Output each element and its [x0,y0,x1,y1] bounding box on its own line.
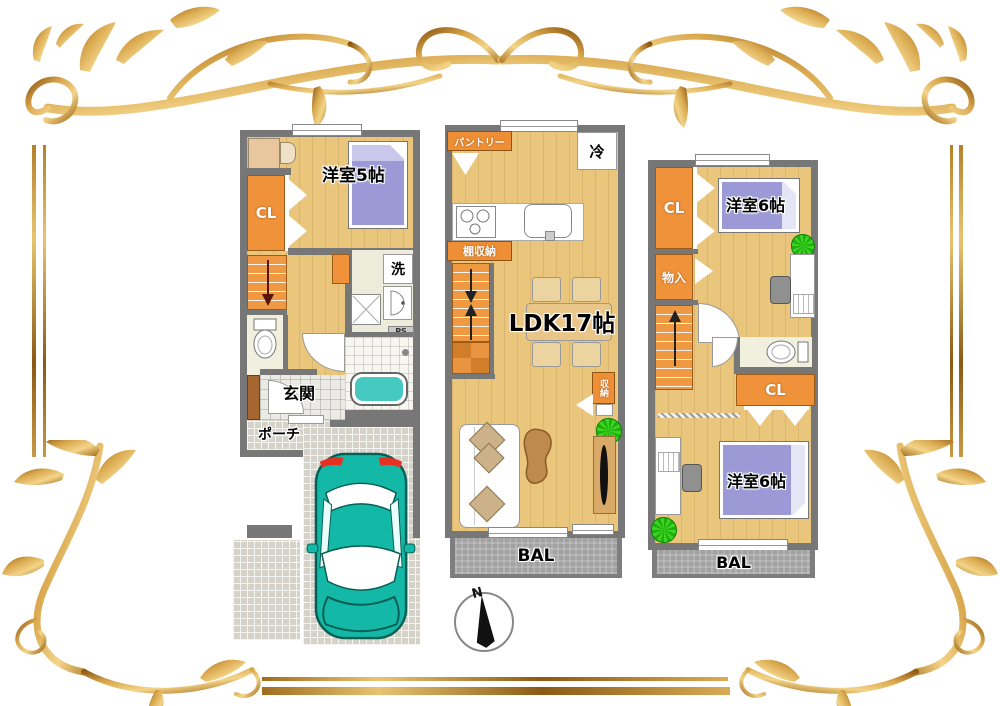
bottom-border-line-thick [262,687,730,695]
plant-icon [651,517,677,543]
storage-3f: 物入 [655,254,693,300]
ldk-label: LDK17帖 [502,304,622,338]
balcony-2f: BAL [450,538,622,578]
wall-segment [490,263,494,374]
balcony-3f: BAL [652,550,815,578]
refrigerator-label: 冷 [589,141,604,162]
balcony-3f-label: BAL [716,553,751,572]
closet-3f-top: CL [655,167,693,249]
washroom-cabinet [332,254,350,284]
dining-chair [532,277,561,302]
dining-chair [572,342,601,367]
closet-1f: CL [247,175,285,251]
floor2-bottom-window [488,527,568,538]
right-border-line-inner [950,145,953,457]
closet-3f-middle: CL [736,374,815,406]
shower-fixture-icon [402,349,409,356]
floor2-bottom-window [572,524,614,535]
desk-3f-bottom [655,437,681,515]
storage-2f-label: 収納 [597,379,610,397]
pantry-label: パントリー [454,134,505,149]
bedroom-5j-label: 洋室5帖 [322,161,385,186]
floor3-top-window [695,154,770,166]
washbasin-icon [383,286,412,320]
desk-counter-1f [248,138,280,170]
porch-label: ポーチ [258,424,300,444]
refrigerator-box: 冷 [577,132,617,170]
car-icon [305,450,417,642]
compass-north-label: N [470,585,484,602]
laundry-label: 洗 [391,259,405,279]
entrance-label: 玄関 [283,380,315,404]
coffee-table-icon [522,428,556,486]
left-border-line-outer [32,145,36,457]
toilet-room-1f [247,315,283,375]
wall-segment [247,525,292,538]
closet-1f-label: CL [256,204,277,222]
laundry-box: 洗 [383,254,413,284]
desk-chair-1f [280,142,296,164]
kitchen-sink [524,204,572,238]
wall-segment [345,410,420,420]
bathtub [350,372,408,406]
balcony-2f-label: BAL [518,546,555,566]
wall-segment [247,168,291,175]
stairs-1f [247,255,287,310]
front-door-step [288,415,324,424]
tv-board [593,436,616,514]
storage-3f-label: 物入 [662,269,686,286]
desk-chair-3f-bottom [682,464,702,492]
dining-chair [532,342,561,367]
wall-segment [734,367,815,374]
desk-3f-top [790,254,815,318]
right-border-line-outer [959,145,963,457]
pantry-tag: パントリー [447,131,512,151]
floor-plan-page: 洋室5帖 CL 洗 PS [0,0,1000,706]
stairs-3f [655,305,693,390]
parking-side-tiles [233,540,300,640]
room-divider-hatch [658,413,740,418]
stair-landing-2f [452,342,490,374]
top-flourish-ornament [20,0,980,140]
washing-machine-icon [351,294,381,325]
closet-3f-top-label: CL [664,199,685,217]
toilet-room-3f [740,337,812,367]
shelf-storage-tag: 棚収納 [447,241,512,261]
small-fixture [596,404,613,416]
storage-2f-tag: 収納 [592,372,615,404]
floor1-top-window [292,124,362,136]
bathroom-1f [345,337,413,410]
closet-3f-middle-label: CL [765,381,786,399]
bedroom-6j-bottom-label: 洋室6帖 [727,468,786,492]
shelf-storage-label: 棚収納 [463,243,496,259]
bottom-left-flourish-ornament [0,440,265,706]
wall-segment [450,374,495,379]
dining-chair [572,277,601,302]
stove-icon [456,206,496,238]
bottom-border-line-thin [262,677,728,681]
stairs-2f [452,263,490,342]
bedroom-6j-top-label: 洋室6帖 [726,192,785,216]
left-border-line-inner [43,145,46,457]
desk-chair-3f-top [770,276,791,304]
shoe-cabinet [247,375,260,420]
wall-segment [283,315,288,375]
